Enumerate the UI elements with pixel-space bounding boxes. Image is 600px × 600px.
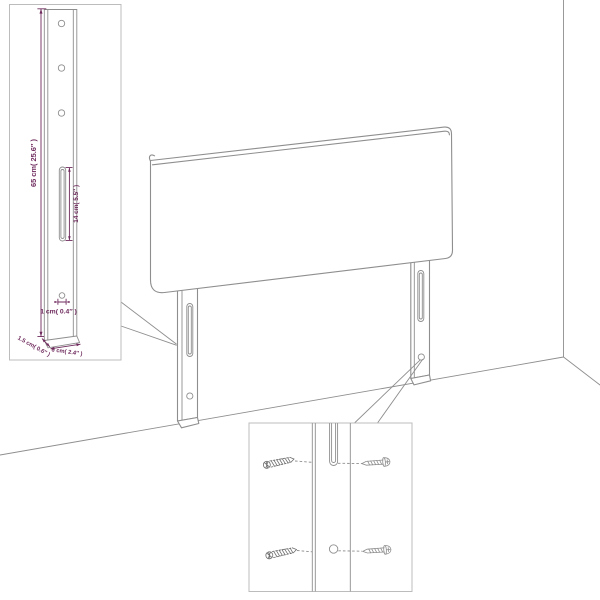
left-detail-callout: 65 cm( 25.6″ ) 14 cm( 5.5″ ) 1 cm( 0.4″ … xyxy=(10,5,122,361)
callout-leaders xyxy=(121,302,423,423)
right-callout-box xyxy=(249,423,412,592)
dim-slot-label: 14 cm( 5.5″ ) xyxy=(73,185,80,223)
dim-height-label: 65 cm( 25.6″ ) xyxy=(29,139,38,187)
headboard-assembly-diagram: 65 cm( 25.6″ ) 14 cm( 5.5″ ) 1 cm( 0.4″ … xyxy=(0,0,600,600)
left-leg xyxy=(178,284,199,428)
right-detail-callout xyxy=(249,423,412,592)
left-callout-wedge xyxy=(121,302,176,345)
dim-hole-label: 1 cm( 0.4″ ) xyxy=(40,309,77,316)
headboard-panel xyxy=(149,127,452,293)
panel-outline xyxy=(151,127,453,293)
product-diagram: 65 cm( 25.6″ ) 14 cm( 5.5″ ) 1 cm( 0.4″ … xyxy=(0,0,600,600)
floor-line-right xyxy=(564,357,600,385)
